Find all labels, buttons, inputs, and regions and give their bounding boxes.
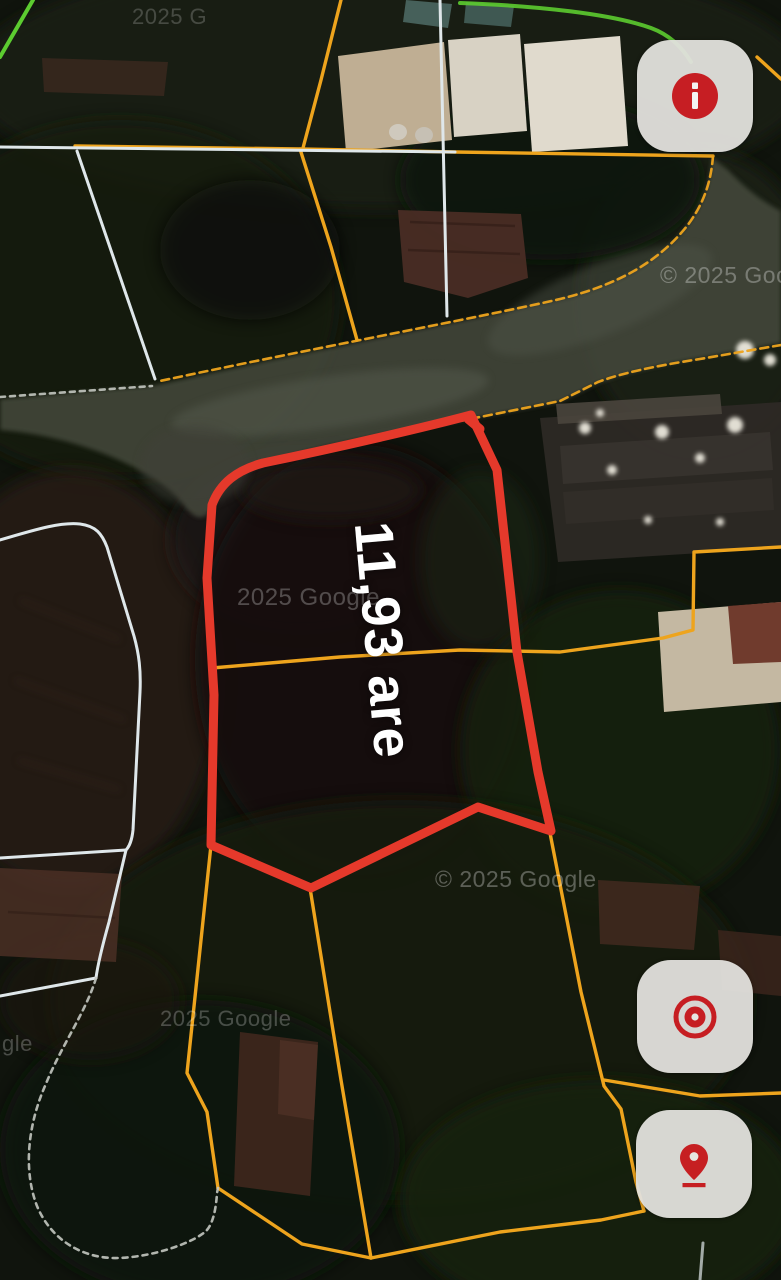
location-pin-button[interactable] (636, 1110, 752, 1218)
location-pin-icon (670, 1140, 718, 1188)
info-icon (671, 72, 719, 120)
satellite-imagery (0, 0, 781, 1280)
info-button[interactable] (637, 40, 753, 152)
satellite-map-view[interactable] (0, 0, 781, 1280)
my-location-button[interactable] (637, 960, 753, 1073)
target-icon (671, 993, 719, 1041)
